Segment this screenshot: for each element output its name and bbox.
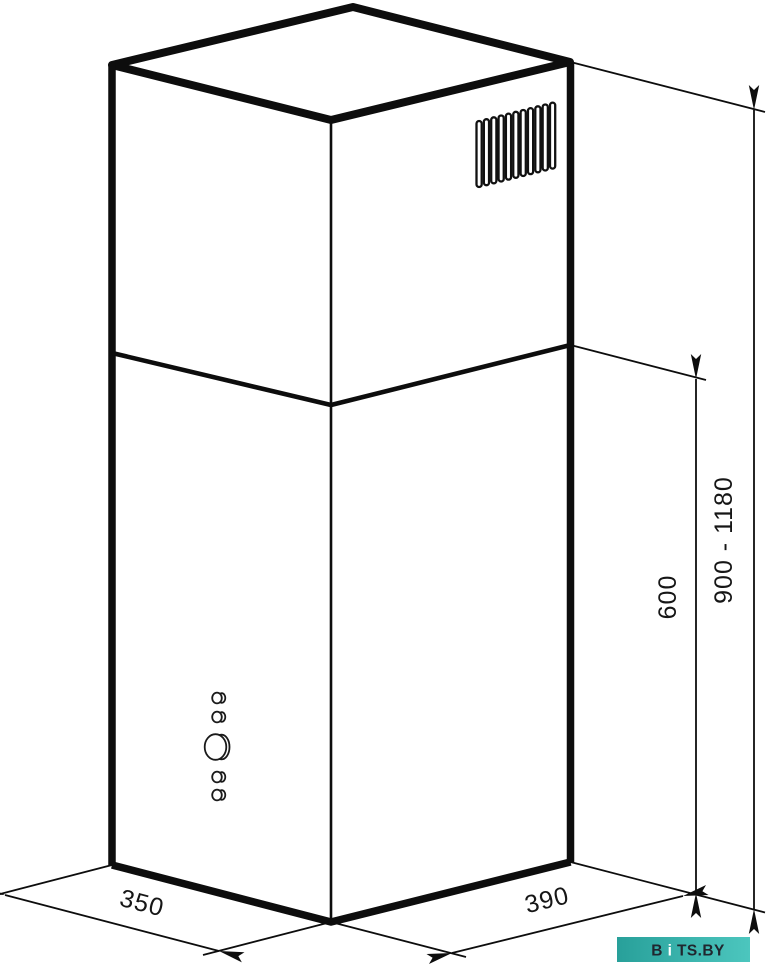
- button-face: [212, 772, 222, 783]
- dimension-label-total-height: 900 - 1180: [710, 476, 738, 604]
- knob-face: [205, 734, 227, 760]
- logo-text: B i TS.BY: [651, 943, 725, 960]
- button-face: [212, 693, 222, 704]
- logo-letter-i: i: [668, 943, 673, 960]
- logo-letter-b: B: [651, 943, 663, 960]
- brand-logo: B i TS.BY: [617, 937, 750, 962]
- button-face: [212, 790, 222, 801]
- hood-dimension-diagram: 350 390 600 900 - 1180 B i TS.BY: [0, 0, 766, 974]
- dimension-label-body-height: 600: [654, 575, 682, 620]
- logo-suffix: TS.BY: [677, 943, 725, 960]
- button-face: [212, 712, 222, 723]
